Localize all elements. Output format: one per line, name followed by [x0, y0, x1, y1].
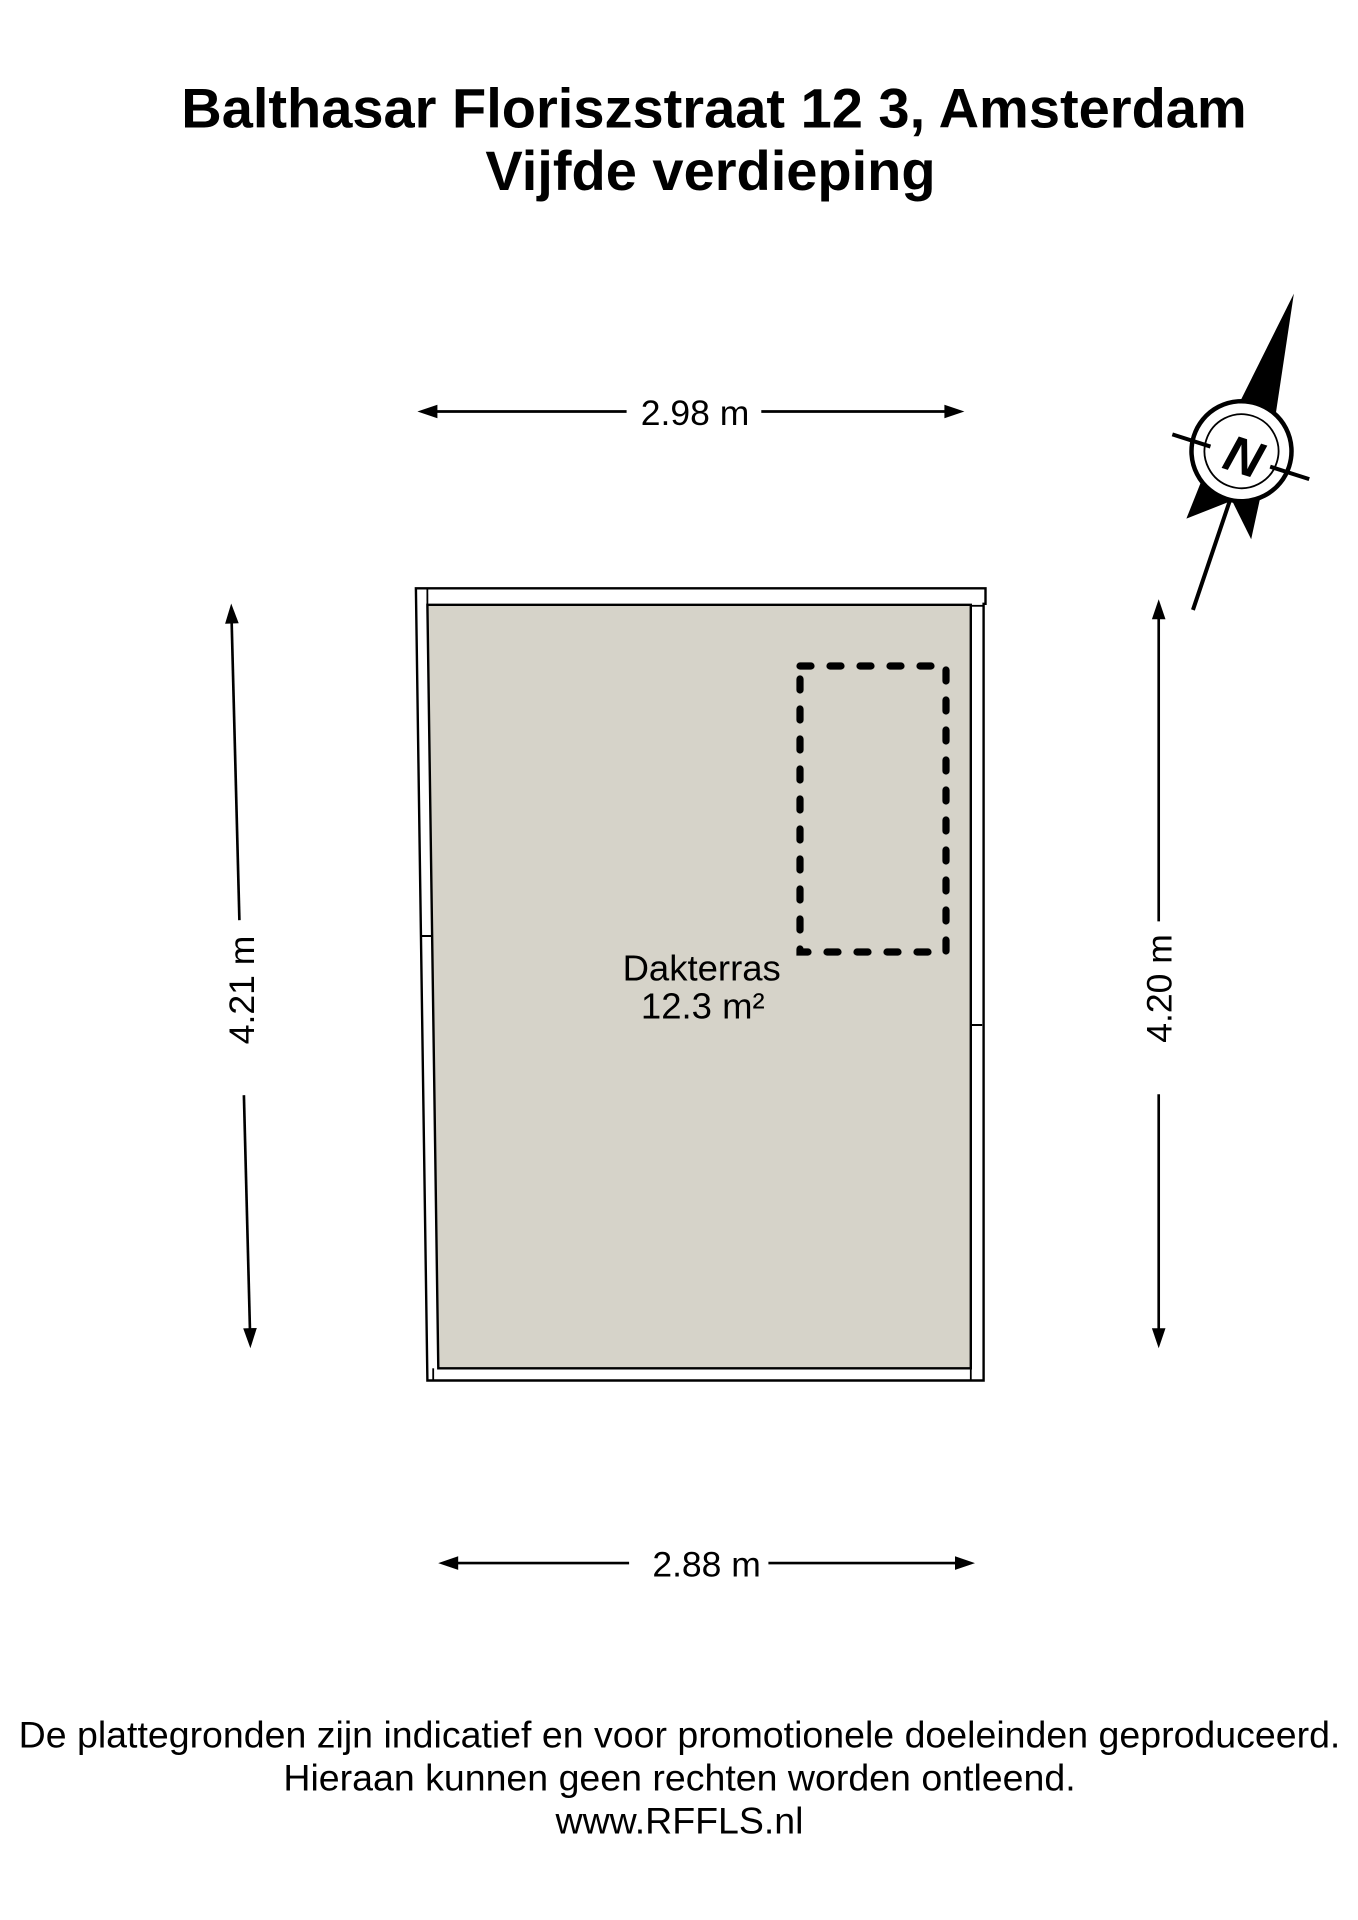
svg-text:Vijfde verdieping: Vijfde verdieping [485, 139, 935, 202]
svg-text:12.3 m²: 12.3 m² [641, 986, 765, 1027]
svg-text:4.21 m: 4.21 m [222, 936, 262, 1045]
svg-text:2.98 m: 2.98 m [641, 393, 750, 433]
svg-text:De plattegronden zijn indicati: De plattegronden zijn indicatief en voor… [19, 1714, 1341, 1756]
svg-text:4.20 m: 4.20 m [1140, 934, 1180, 1043]
svg-text:2.88 m: 2.88 m [652, 1544, 761, 1584]
svg-text:Dakterras: Dakterras [623, 948, 781, 989]
svg-text:Balthasar Floriszstraat 12 3,: Balthasar Floriszstraat 12 3, Amsterdam [181, 77, 1246, 140]
svg-text:www.RFFLS.nl: www.RFFLS.nl [555, 1800, 804, 1842]
svg-text:Hieraan kunnen geen rechten wo: Hieraan kunnen geen rechten worden ontle… [283, 1757, 1075, 1799]
